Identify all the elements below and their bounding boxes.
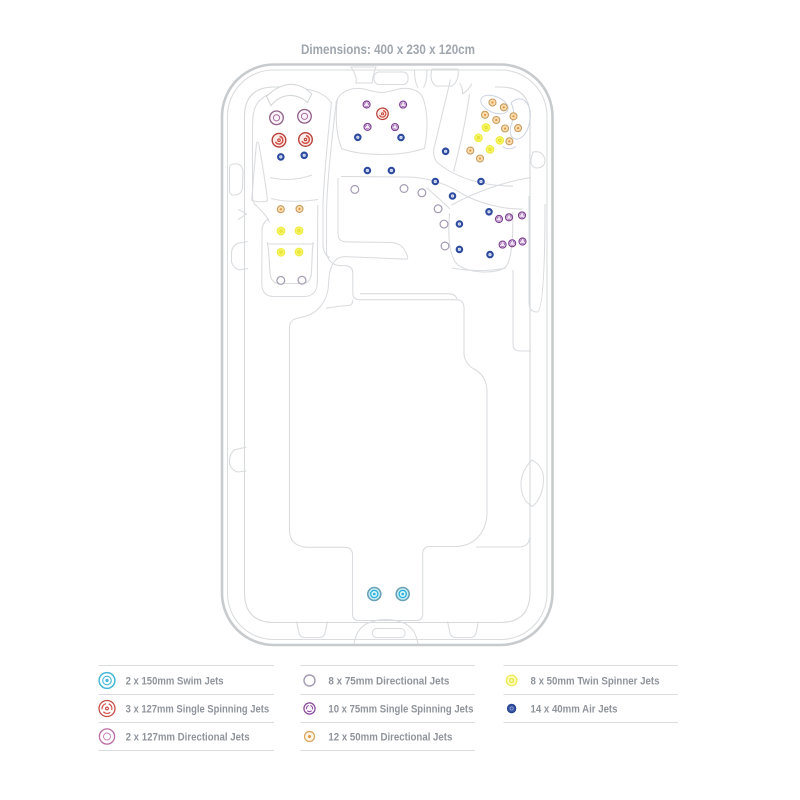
svg-text:3 x 127mm Single Spinning Jets: 3 x 127mm Single Spinning Jets [126,704,270,716]
svg-text:8 x 50mm Twin Spinner Jets: 8 x 50mm Twin Spinner Jets [531,676,660,688]
svg-text:14 x 40mm Air Jets: 14 x 40mm Air Jets [531,704,618,716]
svg-text:2 x 150mm Swim Jets: 2 x 150mm Swim Jets [126,676,224,688]
svg-text:2 x 127mm Directional Jets: 2 x 127mm Directional Jets [126,732,250,744]
svg-text:8 x 75mm Directional Jets: 8 x 75mm Directional Jets [328,676,449,688]
svg-text:12 x 50mm Directional Jets: 12 x 50mm Directional Jets [328,732,452,744]
svg-text:10 x 75mm Single Spinning Jets: 10 x 75mm Single Spinning Jets [328,704,473,716]
svg-text:Dimensions: 400 x 230 x 120cm: Dimensions: 400 x 230 x 120cm [301,41,475,57]
